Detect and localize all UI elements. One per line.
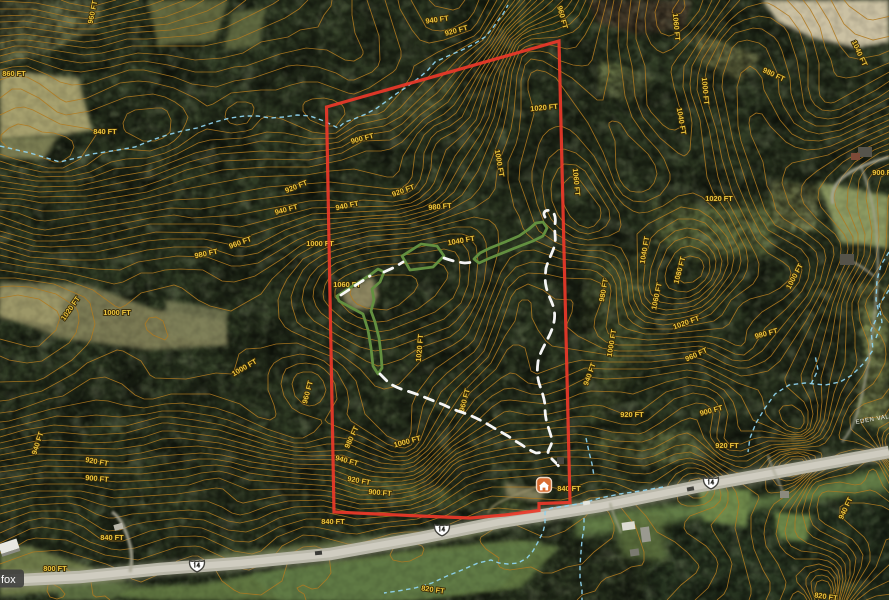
- svg-text:860 FT: 860 FT: [2, 69, 26, 78]
- svg-text:840 FT: 840 FT: [93, 127, 117, 136]
- svg-text:1000 FT: 1000 FT: [103, 308, 131, 317]
- svg-text:840 FT: 840 FT: [321, 517, 345, 526]
- svg-text:800 FT: 800 FT: [43, 564, 67, 573]
- svg-text:1020 FT: 1020 FT: [705, 194, 733, 203]
- svg-text:920 FT: 920 FT: [715, 441, 739, 450]
- svg-text:920 FT: 920 FT: [620, 410, 644, 419]
- svg-text:840 FT: 840 FT: [100, 533, 124, 542]
- svg-text:900 FT: 900 FT: [872, 168, 889, 177]
- svg-text:fox: fox: [1, 574, 16, 586]
